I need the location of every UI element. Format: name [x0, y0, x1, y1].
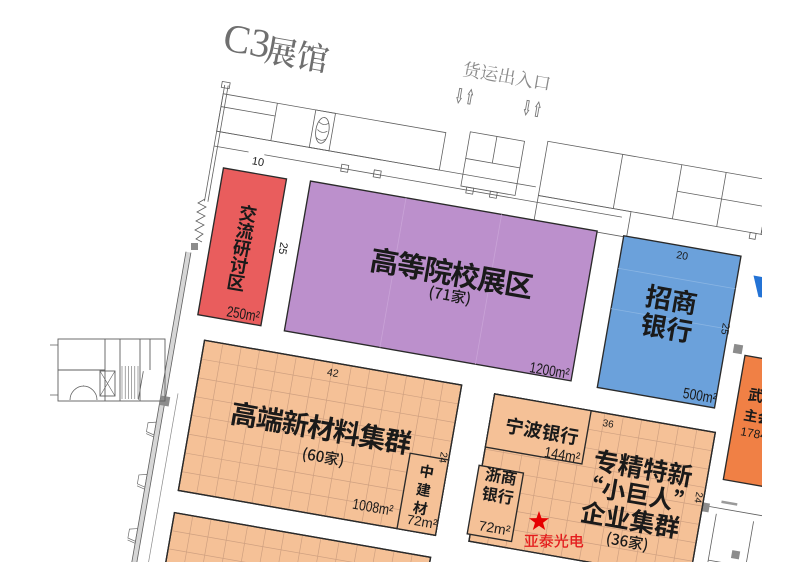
svg-text:25: 25 — [276, 241, 290, 255]
svg-text:42: 42 — [326, 366, 340, 380]
svg-text:25: 25 — [718, 322, 732, 336]
svg-text:20: 20 — [675, 249, 689, 263]
svg-text:C3: C3 — [220, 14, 274, 66]
svg-text:10: 10 — [251, 155, 265, 169]
